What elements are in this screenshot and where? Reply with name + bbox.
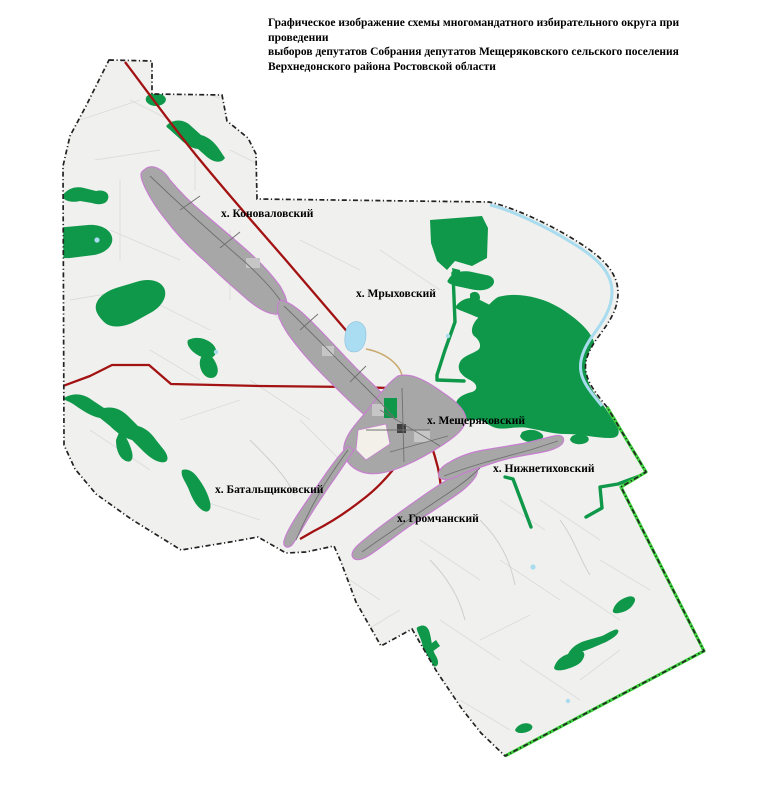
map-page: { "title": { "line1": "Графическое изобр… — [0, 0, 768, 803]
label-konovalovsky: х. Коноваловский — [221, 208, 313, 220]
lake-mrykhovsky — [345, 322, 366, 352]
label-nizhnetikhovsky: х. Нижнетиховский — [493, 463, 595, 475]
label-meshcheryakovsky: х. Мещеряковский — [427, 415, 525, 427]
label-batalshchikovsky: х. Батальщиковский — [215, 484, 323, 496]
map-canvas — [0, 0, 768, 803]
label-gromchansky: х. Громчанский — [397, 513, 479, 525]
label-mrykhovsky: х. Мрыховский — [356, 288, 436, 300]
